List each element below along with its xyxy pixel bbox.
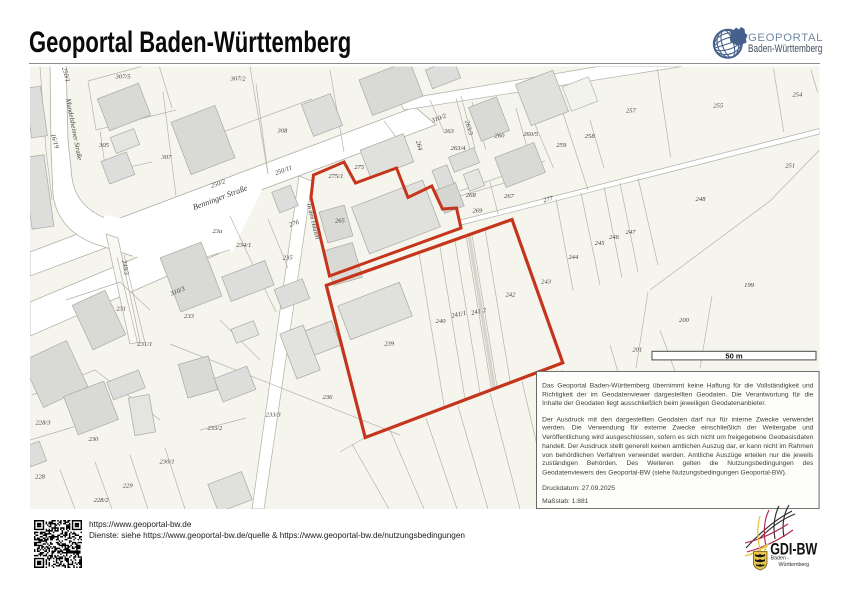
svg-text:Württemberg: Württemberg (779, 562, 810, 568)
svg-text:305: 305 (98, 142, 110, 149)
svg-text:307/5: 307/5 (114, 73, 131, 80)
svg-text:228: 228 (35, 474, 46, 481)
svg-text:235: 235 (283, 255, 294, 262)
svg-text:255: 255 (713, 103, 724, 110)
svg-text:265: 265 (335, 217, 346, 224)
svg-text:258: 258 (585, 133, 596, 140)
svg-text:268: 268 (466, 192, 477, 199)
svg-text:199: 199 (744, 282, 755, 289)
svg-text:245: 245 (595, 240, 606, 247)
svg-text:263: 263 (444, 128, 455, 135)
svg-text:307: 307 (160, 154, 172, 161)
svg-text:247: 247 (626, 229, 637, 236)
svg-text:243: 243 (541, 279, 552, 286)
svg-text:260: 260 (495, 133, 506, 140)
svg-text:233: 233 (184, 313, 195, 320)
svg-text:246: 246 (609, 234, 620, 241)
svg-text:200: 200 (679, 317, 690, 324)
svg-text:260/5: 260/5 (523, 131, 539, 138)
svg-text:240: 240 (436, 318, 447, 325)
svg-text:275: 275 (354, 164, 365, 171)
svg-text:254: 254 (792, 92, 803, 99)
svg-text:248: 248 (696, 196, 707, 203)
svg-text:231/1: 231/1 (137, 341, 152, 348)
svg-text:231: 231 (116, 306, 126, 313)
svg-text:267: 267 (504, 193, 515, 200)
svg-text:229: 229 (123, 482, 134, 489)
svg-text:242: 242 (505, 292, 516, 299)
svg-text:230: 230 (88, 436, 99, 443)
svg-text:23a: 23a (212, 228, 223, 235)
svg-text:259: 259 (556, 142, 567, 149)
svg-text:308: 308 (276, 127, 288, 134)
svg-text:269: 269 (472, 208, 483, 215)
svg-text:275/1: 275/1 (328, 173, 343, 180)
svg-text:50 m: 50 m (725, 351, 743, 360)
svg-text:233/3: 233/3 (266, 412, 282, 419)
svg-text:239: 239 (384, 341, 395, 348)
svg-text:251: 251 (785, 162, 795, 169)
svg-text:228/3: 228/3 (35, 419, 51, 426)
svg-text:201: 201 (632, 346, 642, 353)
svg-text:Baden -: Baden - (771, 556, 790, 562)
svg-text:257: 257 (626, 108, 637, 115)
svg-text:234/1: 234/1 (236, 242, 251, 249)
svg-text:230/1: 230/1 (159, 458, 174, 465)
svg-text:228/2: 228/2 (94, 497, 110, 504)
svg-text:236: 236 (323, 394, 334, 401)
svg-text:233/2: 233/2 (207, 425, 223, 432)
svg-text:307/2: 307/2 (229, 76, 246, 83)
svg-text:244: 244 (568, 254, 579, 261)
svg-text:263/4: 263/4 (451, 145, 467, 152)
